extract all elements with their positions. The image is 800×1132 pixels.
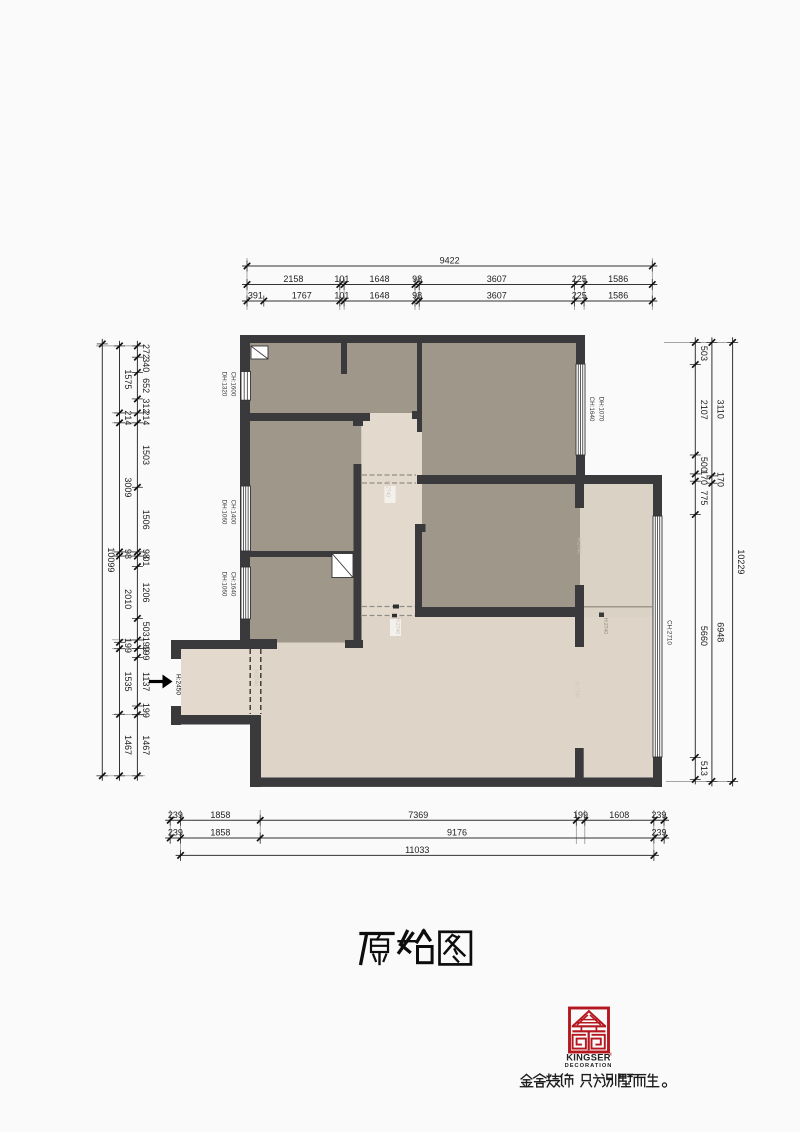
svg-text:503: 503 xyxy=(699,346,709,361)
svg-text:98: 98 xyxy=(412,291,422,301)
svg-text:3607: 3607 xyxy=(487,274,507,284)
svg-text:CH:1600: CH:1600 xyxy=(230,372,237,397)
svg-text:1648: 1648 xyxy=(370,274,390,284)
svg-text:1586: 1586 xyxy=(608,274,628,284)
svg-text:5660: 5660 xyxy=(699,626,709,646)
svg-text:225: 225 xyxy=(572,274,587,284)
svg-text:6948: 6948 xyxy=(715,622,725,642)
svg-text:H:2740: H:2740 xyxy=(394,618,400,634)
svg-text:DH:1060: DH:1060 xyxy=(221,572,228,597)
svg-text:225: 225 xyxy=(572,291,587,301)
svg-text:239: 239 xyxy=(168,810,183,820)
svg-text:199: 199 xyxy=(123,638,133,653)
svg-text:503: 503 xyxy=(141,622,151,637)
svg-text:214: 214 xyxy=(123,410,133,425)
svg-text:101: 101 xyxy=(334,291,349,301)
svg-text:1648: 1648 xyxy=(370,291,390,301)
svg-text:775: 775 xyxy=(699,490,709,505)
svg-text:214: 214 xyxy=(141,410,151,425)
svg-text:513: 513 xyxy=(699,761,709,776)
svg-text:1467: 1467 xyxy=(141,735,151,755)
svg-text:3009: 3009 xyxy=(123,477,133,497)
svg-text:01: 01 xyxy=(141,556,151,566)
svg-text:DH:1320: DH:1320 xyxy=(221,372,228,397)
svg-text:1586: 1586 xyxy=(608,291,628,301)
svg-text:2158: 2158 xyxy=(283,274,303,284)
svg-text:H:2740: H:2740 xyxy=(253,670,259,686)
svg-text:1467: 1467 xyxy=(123,735,133,755)
svg-text:2107: 2107 xyxy=(699,400,709,420)
svg-text:DH:1070: DH:1070 xyxy=(598,397,605,422)
svg-text:10099: 10099 xyxy=(106,547,116,572)
svg-text:9422: 9422 xyxy=(440,256,460,266)
svg-text:1506: 1506 xyxy=(141,510,151,530)
svg-text:KINGSER: KINGSER xyxy=(566,1053,610,1063)
svg-text:2010: 2010 xyxy=(123,589,133,609)
svg-text:CH:1400: CH:1400 xyxy=(230,500,237,525)
svg-text:1767: 1767 xyxy=(292,291,312,301)
svg-text:H:2740: H:2740 xyxy=(576,538,582,554)
svg-text:199: 199 xyxy=(141,703,151,718)
svg-text:652: 652 xyxy=(141,378,151,393)
svg-text:199: 199 xyxy=(141,645,151,660)
svg-text:239: 239 xyxy=(652,828,667,838)
svg-text:1206: 1206 xyxy=(141,582,151,602)
svg-text:7369: 7369 xyxy=(408,810,428,820)
svg-text:10229: 10229 xyxy=(736,549,746,574)
svg-text:DECORATION: DECORATION xyxy=(565,1063,613,1069)
svg-text:1575: 1575 xyxy=(123,369,133,389)
svg-text:3110: 3110 xyxy=(715,399,725,418)
svg-text:H:2740: H:2740 xyxy=(574,682,580,698)
svg-text:1858: 1858 xyxy=(210,828,230,838)
svg-text:1608: 1608 xyxy=(609,810,629,820)
svg-text:11033: 11033 xyxy=(405,845,429,855)
svg-text:1858: 1858 xyxy=(210,810,230,820)
svg-text:DH:1060: DH:1060 xyxy=(221,500,228,525)
svg-text:CH:2710: CH:2710 xyxy=(666,620,673,645)
svg-text:H:2740: H:2740 xyxy=(385,481,391,497)
svg-text:CH:1640: CH:1640 xyxy=(230,572,237,597)
svg-text:1503: 1503 xyxy=(141,445,151,465)
svg-text:H:2450: H:2450 xyxy=(175,674,182,695)
svg-text:3607: 3607 xyxy=(487,291,507,301)
svg-text:239: 239 xyxy=(168,828,183,838)
svg-text:1535: 1535 xyxy=(123,671,133,691)
svg-text:H:2740: H:2740 xyxy=(602,618,608,634)
svg-text:98: 98 xyxy=(123,549,133,559)
svg-text:391: 391 xyxy=(248,291,263,301)
svg-text:340: 340 xyxy=(141,357,151,372)
svg-text:199: 199 xyxy=(573,810,588,820)
svg-text:1137: 1137 xyxy=(141,672,151,691)
svg-text:9176: 9176 xyxy=(447,828,467,838)
svg-text:98: 98 xyxy=(412,274,422,284)
svg-text:101: 101 xyxy=(334,274,349,284)
svg-text:170: 170 xyxy=(715,472,725,487)
svg-text:CH:1640: CH:1640 xyxy=(588,397,595,422)
svg-text:239: 239 xyxy=(651,810,666,820)
